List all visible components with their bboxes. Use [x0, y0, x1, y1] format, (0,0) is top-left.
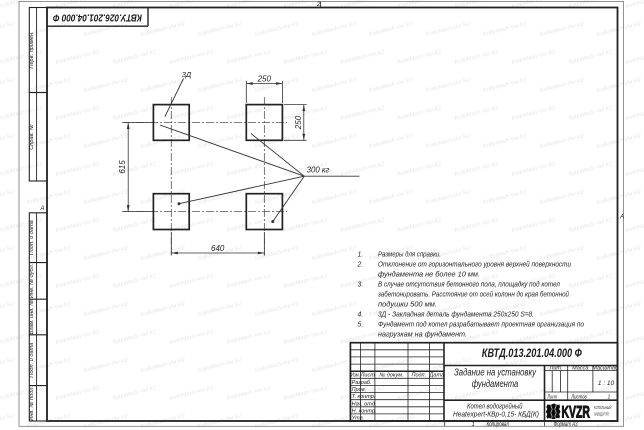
- svg-text:300 кг: 300 кг: [307, 165, 330, 174]
- svg-text:3Д: 3Д: [182, 70, 192, 79]
- svg-text:Пров.: Пров.: [352, 387, 367, 393]
- svg-text:Н. контр.: Н. контр.: [352, 409, 377, 415]
- svg-text:250: 250: [257, 75, 272, 84]
- svg-text:1.: 1.: [358, 251, 364, 258]
- svg-text:Утв.: Утв.: [351, 416, 365, 422]
- svg-text:Дата: Дата: [429, 373, 445, 379]
- svg-text:Масштаб: Масштаб: [592, 366, 619, 372]
- svg-text:Разраб.: Разраб.: [352, 380, 372, 386]
- svg-text:Подп. и дата: Подп. и дата: [29, 343, 35, 378]
- svg-text:640: 640: [211, 244, 225, 253]
- svg-text:Лист: Лист: [360, 373, 376, 379]
- svg-text:Задание на установку: Задание на установку: [454, 367, 537, 378]
- svg-text:В случае отсутствия бетонного: В случае отсутствия бетонного пола, площ…: [378, 281, 560, 289]
- svg-text:Изм.: Изм.: [351, 373, 360, 379]
- svg-text:3.: 3.: [358, 282, 364, 289]
- svg-text:нагрузкам на фундамент.: нагрузкам на фундамент.: [378, 331, 467, 339]
- svg-text:КВТД.013.201.04.000 Ф: КВТД.013.201.04.000 Ф: [482, 346, 582, 360]
- svg-text:Масса: Масса: [572, 366, 588, 372]
- svg-text:Копировал: Копировал: [486, 422, 509, 428]
- svg-text:ЗАВОД РЭП: ЗАВОД РЭП: [594, 411, 609, 416]
- svg-text:1: 1: [608, 395, 611, 401]
- svg-text:Нач. отд.: Нач. отд.: [352, 401, 377, 407]
- svg-text:KVZR: KVZR: [562, 403, 591, 421]
- svg-text:Т. контр.: Т. контр.: [352, 394, 376, 400]
- svg-text:1 : 10: 1 : 10: [598, 380, 615, 387]
- svg-text:№ докум.: № докум.: [379, 373, 403, 379]
- svg-text:Взам. инв. №: Взам. инв. №: [29, 300, 35, 335]
- svg-text:фундамента: фундамента: [472, 379, 519, 390]
- svg-text:Отклонение от горизонтального: Отклонение от горизонтального уровня вер…: [378, 260, 571, 268]
- svg-text:Лит.: Лит.: [549, 366, 563, 372]
- svg-text:КОТЕЛЬНЫЙ: КОТЕЛЬНЫЙ: [594, 403, 612, 410]
- svg-text:Лист: Лист: [547, 395, 557, 401]
- svg-text:Справ. №: Справ. №: [29, 124, 35, 149]
- svg-text:КВТУ.026.201.04.000 Ф: КВТУ.026.201.04.000 Ф: [53, 11, 142, 22]
- svg-text:Формат А3: Формат А3: [554, 422, 578, 428]
- svg-text:Подп.: Подп.: [411, 373, 426, 379]
- svg-text:Инв. № подл.: Инв. № подл.: [29, 386, 35, 421]
- svg-text:250: 250: [294, 115, 303, 130]
- svg-text:Перв. примен.: Перв. примен.: [29, 31, 35, 68]
- svg-text:Heatexpert-КВр-0,15- КБД(К): Heatexpert-КВр-0,15- КБД(К): [453, 412, 539, 419]
- svg-text:Инв. № дубл.: Инв. № дубл.: [29, 264, 35, 298]
- svg-text:5.: 5.: [358, 322, 364, 329]
- svg-text:А: А: [619, 215, 624, 221]
- svg-text:Листов: Листов: [570, 395, 587, 401]
- svg-text:Подп. и дата: Подп. и дата: [29, 220, 35, 255]
- svg-text:1: 1: [472, 422, 475, 428]
- svg-text:Котел водогрейный: Котел водогрейный: [467, 403, 523, 411]
- svg-text:615: 615: [118, 160, 127, 174]
- svg-text:фундамента не более 10 мм.: фундамента не более 10 мм.: [378, 271, 480, 279]
- svg-text:Размеры для справки.: Размеры для справки.: [378, 250, 441, 258]
- svg-text:подушки 500 мм.: подушки 500 мм.: [378, 301, 437, 309]
- svg-text:4.: 4.: [358, 312, 364, 319]
- svg-text:2.: 2.: [357, 261, 364, 268]
- svg-text:Фундамент под котел разрабатыв: Фундамент под котел разрабатывает проект…: [378, 321, 584, 329]
- svg-text:А: А: [40, 206, 45, 212]
- svg-text:забетонировать. Расстояние от: забетонировать. Расстояние от осей колон…: [377, 291, 569, 299]
- svg-text:3Д - Закладная деталь фундамен: 3Д - Закладная деталь фундамента 250х250…: [378, 311, 534, 319]
